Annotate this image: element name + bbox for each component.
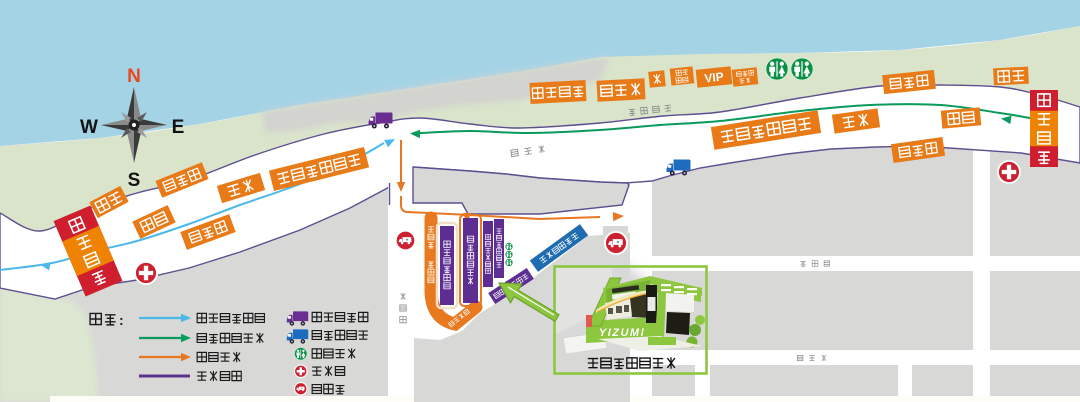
- svg-text:N: N: [127, 66, 141, 87]
- svg-text:W: W: [80, 117, 98, 138]
- svg-text::: :: [119, 312, 124, 328]
- svg-text:VIP: VIP: [704, 70, 725, 86]
- svg-text:YIZUMI: YIZUMI: [599, 327, 645, 339]
- svg-text:S: S: [128, 170, 141, 191]
- svg-text:E: E: [172, 117, 185, 138]
